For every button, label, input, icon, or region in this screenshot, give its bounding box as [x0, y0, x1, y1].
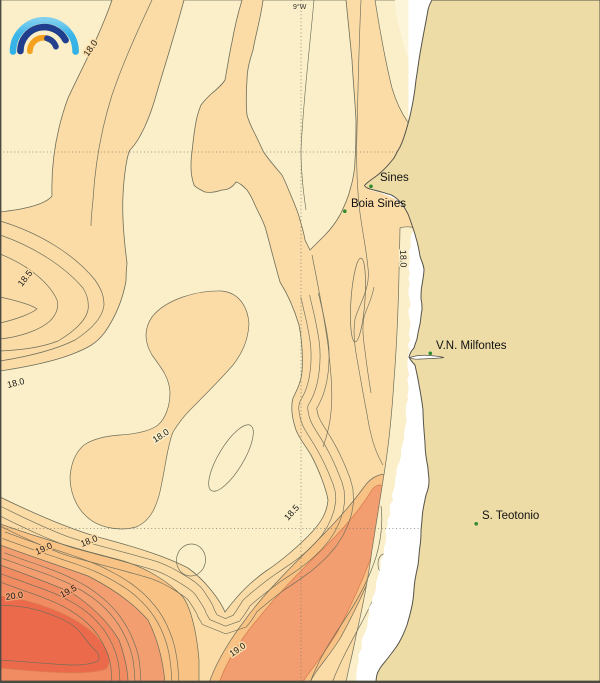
- svg-text:S. Teotonio: S. Teotonio: [482, 510, 539, 522]
- svg-text:18.0: 18.0: [398, 250, 409, 268]
- svg-text:9°W: 9°W: [293, 3, 307, 11]
- svg-text:Sines: Sines: [380, 172, 409, 184]
- svg-text:V.N. Milfontes: V.N. Milfontes: [436, 340, 507, 352]
- svg-text:Boia Sines: Boia Sines: [351, 198, 406, 210]
